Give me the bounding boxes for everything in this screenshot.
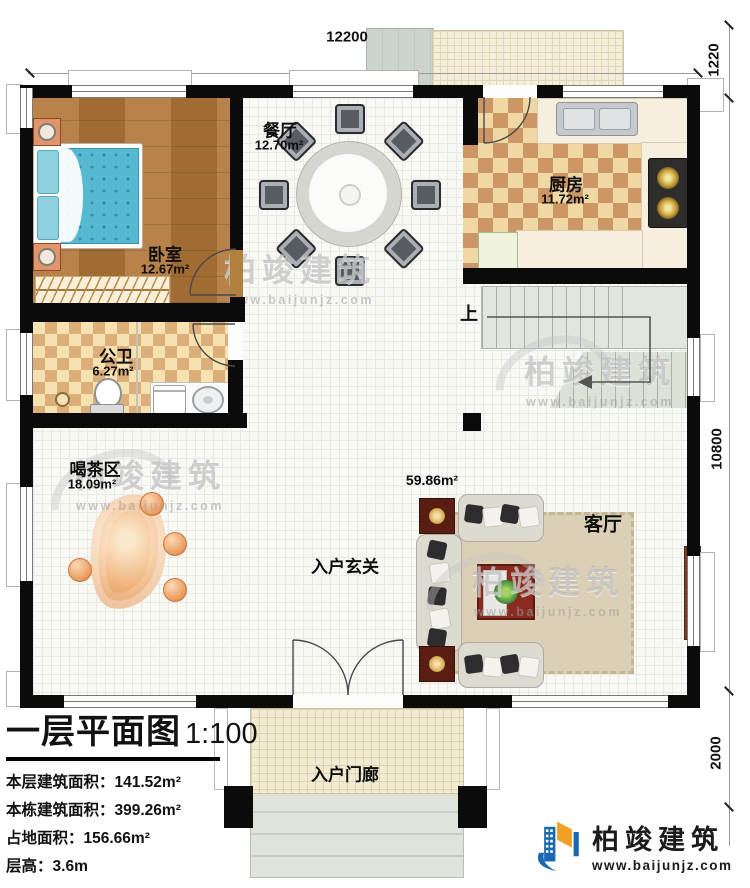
dining-chair (335, 256, 365, 286)
window-right-living (687, 556, 700, 646)
dimension-right-bottom-value: 2000 (708, 736, 725, 769)
bathroom-sink (192, 386, 224, 414)
brand-url: www.baijunjz.com (592, 858, 733, 873)
room-area-kitchen: 11.72m² (541, 192, 589, 207)
stat-value: 141.52m² (115, 774, 181, 791)
bathroom-door-opening (228, 322, 243, 360)
coffee-table (477, 564, 535, 620)
room-area-dining: 12.70m² (255, 138, 303, 153)
cushion (464, 504, 484, 524)
info-panel: 一层平面图 1:100 本层建筑面积：141.52m² 本栋建筑面积：399.2… (6, 704, 258, 881)
plant (494, 580, 518, 604)
brand-logo-icon (532, 816, 584, 874)
stat-label: 本栋建筑面积： (6, 802, 115, 819)
sofa-left (416, 534, 462, 652)
washing-machine (153, 385, 186, 414)
dining-chair (335, 104, 365, 134)
entry-door-opening (293, 695, 403, 708)
room-label-porch: 入户门廊 (311, 761, 379, 786)
nightstand-top (33, 118, 61, 146)
window-top-dining (293, 85, 413, 98)
bathroom-divider (136, 322, 138, 413)
tea-stool (140, 492, 164, 516)
logo-tower (544, 827, 555, 862)
logo-slab (574, 832, 579, 856)
stat-label: 本层建筑面积： (6, 774, 115, 791)
floor-plan-canvas: 柏竣建筑 www.baijunjz.com 柏竣建筑 www.baijunjz.… (0, 0, 750, 888)
window-bottom-right (512, 695, 668, 708)
sofa-bottom (458, 642, 544, 688)
cushion (518, 656, 541, 679)
tea-stool (68, 558, 92, 582)
exterior-back-patio (432, 30, 624, 87)
wall-bathroom-east (228, 360, 243, 413)
window-right-stairs (687, 338, 700, 396)
brand-name: 柏竣建筑 (592, 818, 733, 857)
brand-logo: 柏竣建筑 www.baijunjz.com (532, 816, 733, 874)
porch-rail-right (486, 708, 500, 790)
end-table-top (419, 498, 455, 534)
wardrobe (35, 276, 170, 304)
floor-drain (55, 392, 70, 407)
dimension-top-value: 12200 (326, 29, 368, 46)
sofa-top (458, 494, 544, 542)
cushion (464, 654, 484, 674)
cushion (518, 506, 541, 529)
dining-chair (411, 180, 441, 210)
stove (648, 158, 689, 228)
window-left-bathroom (20, 333, 33, 395)
kitchen-sink (556, 102, 638, 136)
sill (700, 552, 715, 652)
bed-pillow-top (37, 150, 59, 194)
room-area-foyer: 59.86m² (406, 472, 458, 488)
plan-title: 一层平面图 (6, 704, 181, 753)
dimension-right-top-value: 1220 (706, 43, 723, 76)
fridge (478, 232, 518, 269)
stat-value: 3.6m (53, 858, 88, 875)
room-area-bedroom: 12.67m² (141, 262, 189, 277)
end-table-bottom (419, 646, 455, 682)
sink-basin (563, 108, 595, 130)
dimension-line-right (729, 24, 730, 846)
title-rule (6, 757, 220, 761)
plan-scale: 1:100 (185, 718, 258, 751)
tea-stool (163, 578, 187, 602)
column-foyer (463, 413, 481, 431)
stairs-up-label: 上 (460, 300, 478, 326)
sill (700, 334, 715, 402)
room-area-tea-area: 18.09m² (68, 477, 116, 492)
dining-table (296, 141, 402, 247)
window-top-kitchen (563, 85, 663, 98)
porch-steps (250, 792, 464, 878)
kitchen-back-door-opening (483, 85, 537, 98)
tea-stool (163, 532, 187, 556)
stat-label: 占地面积： (6, 830, 84, 847)
stairs-treads (482, 287, 628, 348)
porch-column-right (458, 786, 487, 828)
room-label-living: 客厅 (584, 510, 622, 537)
burner (657, 167, 679, 189)
dimension-right-middle-value: 10800 (709, 428, 726, 470)
logo-roof (557, 822, 572, 848)
window-top-bedroom (72, 85, 186, 98)
wall-kitchen-south (463, 268, 700, 284)
stairs-upper-flight (481, 286, 689, 349)
wall-bedroom-east-upper (230, 98, 243, 250)
wall-dining-kitchen (463, 98, 478, 145)
sink-basin (599, 108, 631, 130)
cushion (427, 586, 447, 606)
wall-left (20, 85, 33, 708)
burner (657, 197, 679, 219)
cushion (500, 504, 521, 525)
stat-value: 156.66m² (84, 830, 150, 847)
wall-bedroom-south (20, 303, 243, 322)
wall-bathroom-south (20, 413, 247, 428)
window-left-bedroom (20, 88, 33, 128)
cushion (429, 562, 452, 585)
room-area-bathroom: 6.27m² (92, 364, 133, 379)
bedroom-door-opening (230, 250, 243, 297)
dining-set (296, 141, 400, 245)
stat-label: 层高： (6, 858, 53, 875)
bed-pillow-bottom (37, 196, 59, 240)
dining-chair (259, 180, 289, 210)
nightstand-bottom (33, 243, 61, 271)
room-label-foyer: 入户玄关 (311, 553, 379, 578)
cushion (426, 539, 447, 560)
stat-value: 399.26m² (115, 802, 181, 819)
window-left-tea (20, 487, 33, 581)
kitchen-counter-bottom (516, 230, 643, 270)
